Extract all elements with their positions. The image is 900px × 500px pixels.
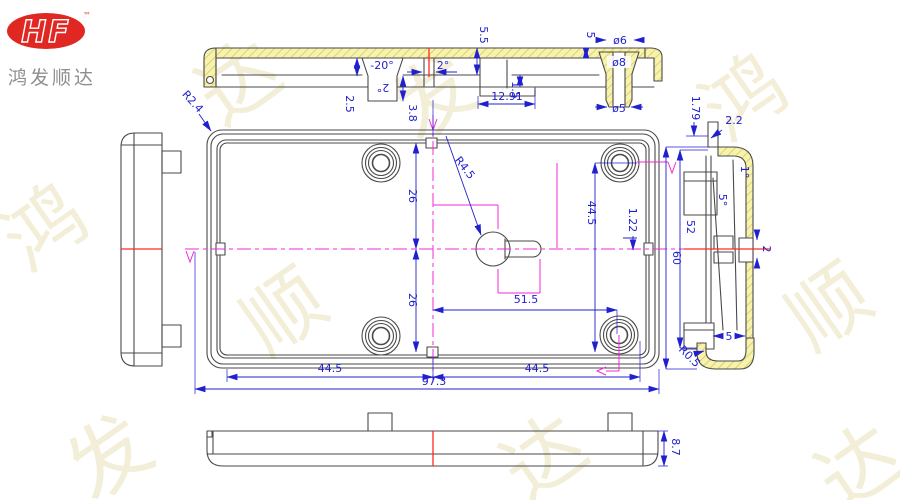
dim-angle-1: 1° — [738, 166, 751, 179]
dim-rib-2: 2° — [437, 59, 450, 72]
dim-3-8: 3.8 — [406, 104, 419, 122]
main-top-view: 26 26 44.5 1.22 51.5 44.5 44.5 97.3 R2.4… — [179, 88, 684, 394]
left-view-tab-top — [162, 151, 181, 173]
dim-2-5: 2.5 — [343, 95, 356, 113]
mounting-boss-bottom-left — [362, 317, 400, 355]
logo-trademark: ™ — [83, 11, 91, 20]
dim-97-3: 97.3 — [422, 375, 447, 388]
dim-neg20: -20° — [370, 59, 393, 72]
dim-angle-5: 5° — [716, 194, 729, 207]
section-left-notch — [207, 77, 214, 84]
watermark-char: 发 — [50, 396, 169, 500]
section-right-corner — [645, 48, 662, 81]
logo-company-name: 鸿发顺达 — [8, 67, 96, 89]
watermark-char: 达 — [180, 21, 299, 143]
watermark-char: 达 — [800, 406, 900, 500]
dim-1-5: 1.5 — [509, 81, 522, 99]
cad-drawing-canvas: 鸿 发 顺 发 达 鸿 顺 达 达 5.5 2.5 3.8 -20° 2° — [0, 0, 900, 500]
magenta-arrow-left — [186, 251, 194, 262]
dim-slot-2: 2° — [377, 81, 390, 94]
mounting-boss-top-left — [362, 144, 400, 182]
dim-dia5: ø5 — [612, 102, 626, 115]
dim-26-bottom: 26 — [406, 293, 419, 307]
dim-5: 5 — [584, 32, 597, 39]
left-view-tab-bottom — [162, 325, 181, 347]
dim-44-5-left: 44.5 — [318, 362, 343, 375]
watermark-char: 达 — [485, 396, 604, 500]
dim-1-22: 1.22 — [626, 208, 639, 233]
edge-tab-top — [426, 138, 437, 148]
magenta-arrow-right — [668, 162, 676, 173]
dim-1-79: 1.79 — [689, 96, 702, 121]
watermark-char: 鸿 — [0, 166, 104, 288]
dim-r4-5: R4.5 — [452, 154, 478, 182]
dim-26-top: 26 — [406, 189, 419, 203]
side-clip-cut — [739, 238, 753, 262]
logo-brand-text: HF — [21, 15, 71, 50]
section-top-wall — [216, 48, 645, 58]
bottom-tab-left — [368, 413, 392, 431]
dim-51-5: 51.5 — [514, 293, 539, 306]
cad-drawing-page: 鸿 发 顺 发 达 鸿 顺 达 达 5.5 2.5 3.8 -20° 2° — [0, 0, 900, 500]
dim-8-7: 8.7 — [669, 438, 682, 456]
bottom-view: 8.7 — [207, 413, 682, 466]
dim-2-2: 2.2 — [725, 114, 743, 127]
dim-5-side: 5 — [726, 330, 733, 343]
bottom-tab-right — [608, 413, 632, 431]
dim-44-5-right: 44.5 — [525, 362, 550, 375]
dim-60: 60 — [670, 251, 683, 265]
dim-5-5: 5.5 — [477, 26, 490, 44]
dim-dia8: ø8 — [612, 56, 626, 69]
dim-52: 52 — [684, 220, 697, 234]
background-watermark: 鸿 发 顺 发 达 鸿 顺 达 达 — [0, 21, 900, 500]
side-boss-profile — [684, 172, 717, 215]
watermark-char: 顺 — [770, 246, 889, 368]
dim-2-side: 2 — [760, 246, 773, 253]
left-side-view — [121, 133, 181, 366]
dim-dia6: ø6 — [613, 34, 627, 47]
dim-44-5-vertical: 44.5 — [585, 201, 598, 226]
company-logo: HF ™ 鸿发顺达 — [7, 11, 96, 89]
